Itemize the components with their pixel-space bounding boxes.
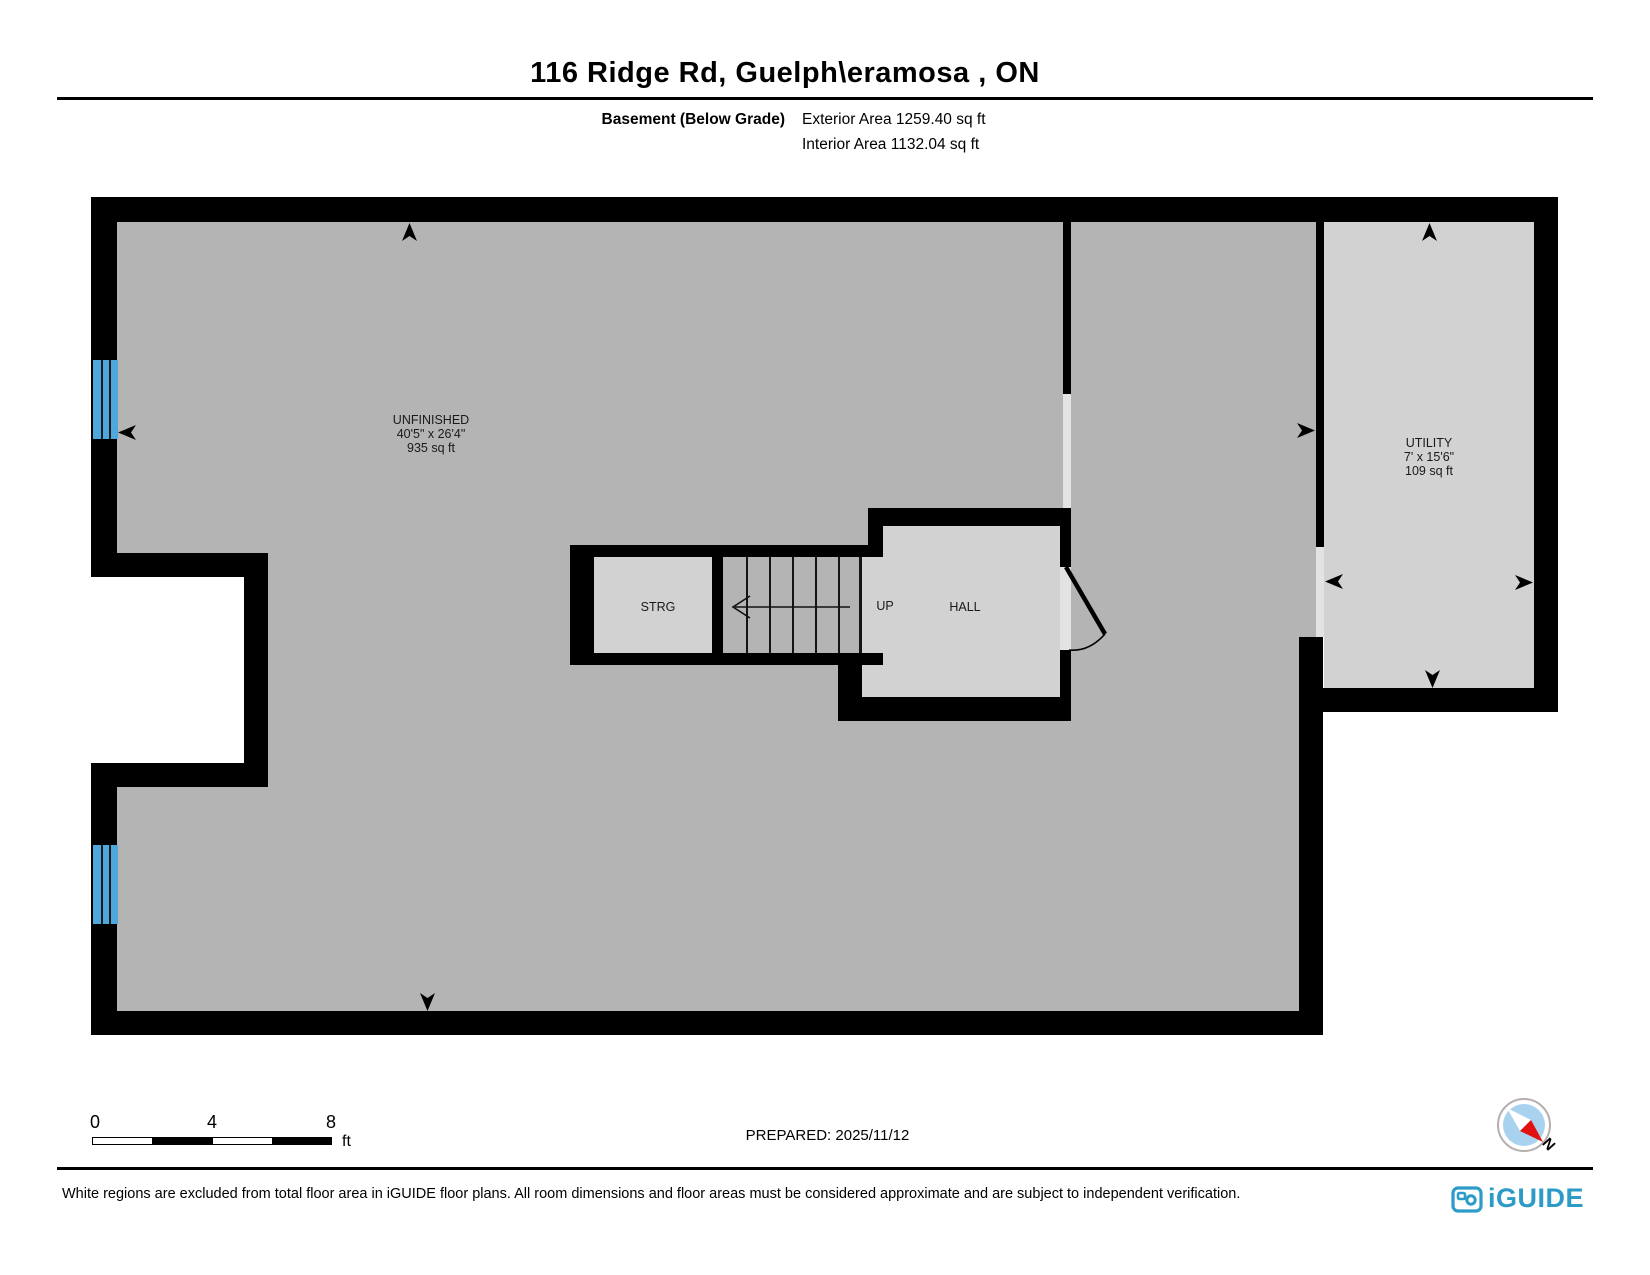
footer-divider	[57, 1167, 1593, 1170]
footer-disclaimer: White regions are excluded from total fl…	[62, 1186, 1242, 1202]
window-mullion	[101, 845, 103, 924]
wall-utility-left	[1316, 222, 1324, 547]
door-swing	[1058, 558, 1128, 658]
wall-hall-bottom	[838, 697, 1071, 721]
scale-bar	[92, 1137, 332, 1145]
excluded-notch-region	[91, 577, 244, 763]
room-label-up: UP	[876, 599, 893, 613]
wall-hall-corridor	[1063, 222, 1071, 394]
room-dims: 40'5" x 26'4"	[393, 427, 469, 441]
stair-up-arrow	[723, 593, 855, 621]
window-lower	[93, 845, 118, 924]
room-area: 935 sq ft	[393, 441, 469, 455]
chevron-down-icon	[1425, 670, 1440, 688]
wall-stairs-top	[570, 545, 883, 557]
wall-strg-left	[570, 545, 594, 665]
room-dims: 7' x 15'6"	[1404, 450, 1454, 464]
interior-area: Interior Area 1132.04 sq ft	[802, 136, 979, 154]
wall-notch-top	[91, 553, 268, 577]
prepared-date: PREPARED: 2025/11/12	[600, 1127, 1055, 1144]
window-mullion	[101, 360, 103, 439]
scale-tick-8: 8	[326, 1112, 336, 1133]
wall-right-outer	[1534, 197, 1558, 712]
wall-bottom	[91, 1011, 1323, 1035]
room-name: UNFINISHED	[393, 413, 469, 427]
corridor-opening	[1063, 394, 1071, 508]
wall-utility-bottom	[1299, 688, 1558, 712]
room-label-hall: HALL	[949, 600, 980, 614]
floorplan-page: 116 Ridge Rd, Guelph\eramosa , ON Baseme…	[0, 0, 1650, 1275]
wall-top	[91, 197, 1558, 222]
wall-notch-right	[244, 553, 268, 787]
window-upper	[93, 360, 118, 439]
exterior-area: Exterior Area 1259.40 sq ft	[802, 111, 986, 129]
chevron-right-icon	[1515, 575, 1533, 590]
chevron-up-icon	[1422, 223, 1437, 241]
chevron-down-icon	[420, 993, 435, 1011]
iguide-camera-icon	[1450, 1184, 1484, 1214]
scale-tick-0: 0	[90, 1112, 100, 1133]
wall-hall-jog	[868, 508, 883, 557]
wall-hall-top	[868, 508, 1071, 526]
stair-edge	[859, 557, 862, 653]
wall-strg-divider	[712, 545, 723, 665]
header-divider	[57, 97, 1593, 100]
room-label-unfinished: UNFINISHED 40'5" x 26'4" 935 sq ft	[393, 413, 469, 455]
window-mullion	[109, 845, 111, 924]
wall-notch-bottom	[91, 763, 268, 787]
page-title: 116 Ridge Rd, Guelph\eramosa , ON	[200, 57, 1370, 90]
iguide-logo-text: iGUIDE	[1488, 1183, 1584, 1214]
floor-label: Basement (Below Grade)	[385, 111, 785, 129]
room-label-strg: STRG	[641, 600, 676, 614]
utility-door-opening	[1316, 547, 1324, 637]
chevron-left-icon	[1325, 574, 1343, 589]
room-area: 109 sq ft	[1404, 464, 1454, 478]
chevron-left-icon	[118, 425, 136, 440]
iguide-logo: iGUIDE	[1450, 1183, 1584, 1214]
scale-tick-4: 4	[207, 1112, 217, 1133]
room-name: UTILITY	[1404, 436, 1454, 450]
chevron-up-icon	[402, 223, 417, 241]
unfinished-floor-lower	[117, 637, 1299, 1011]
chevron-right-icon	[1297, 423, 1315, 438]
room-label-utility: UTILITY 7' x 15'6" 109 sq ft	[1404, 436, 1454, 478]
window-mullion	[109, 360, 111, 439]
wall-stairs-bottom	[570, 653, 883, 665]
scale-unit: ft	[342, 1133, 351, 1151]
